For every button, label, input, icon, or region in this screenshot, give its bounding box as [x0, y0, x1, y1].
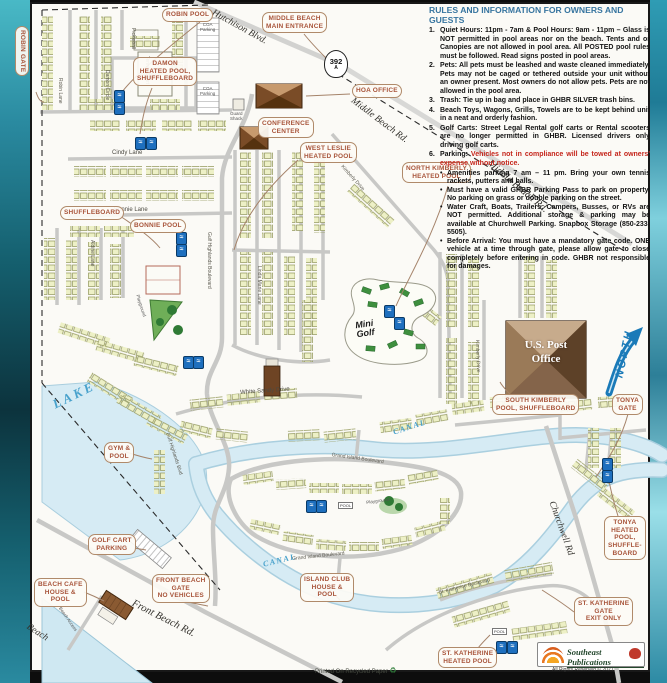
label-conference-center: CONFERENCE CENTER [258, 117, 314, 138]
pool-box-label: POOL [492, 628, 507, 635]
rule-item: 6. Parking: Vehicles not in compliance w… [429, 151, 650, 168]
highway-392-shield: 392 A [324, 50, 348, 78]
street-pickleball: Pickleball [130, 28, 136, 49]
pool-icon: ≈ [114, 102, 125, 115]
pool-icon: ≈ [384, 305, 395, 318]
pool-icon: ≈ [394, 317, 405, 330]
label-tonya-gate: TONYA GATE [612, 394, 643, 415]
rule-bullet: •Before Arrival: You must have a mandato… [440, 238, 650, 272]
street-cindy-lane: Cindy Lane [112, 150, 142, 156]
label-golf-cart-parking: GOLF CART PARKING [88, 534, 136, 555]
label-robin-gate: ROBIN GATE [15, 26, 29, 76]
rule-item: 5. Golf Carts: Street Legal Rental golf … [429, 125, 650, 151]
pool-icon: ≈ [146, 137, 157, 150]
map-page: RULES AND INFORMATION FOR OWNERS AND GUE… [0, 0, 667, 683]
label-shuffleboard: SHUFFLEBOARD [60, 206, 124, 220]
pool-icon: ≈ [193, 356, 204, 369]
sunset-icon [541, 647, 565, 663]
label-south-kimberly-pool: SOUTH KIMBERLY POOL, SHUFFLEBOARD [492, 394, 579, 415]
label-bonnie-pool: BONNIE POOL [130, 219, 186, 233]
label-hoa-office: HOA OFFICE [352, 84, 402, 98]
printed-on-recycled-paper: Printed On Recycled Paper ♻ [315, 666, 397, 675]
street-aldine-lane: Aldine Lane [89, 240, 95, 266]
mini-golf-label: Mini Golf [355, 319, 375, 340]
pool-icon: ≈ [602, 470, 613, 483]
street-gulf-highlands-blvd: Gulf Highlands Boulevard [206, 232, 212, 289]
rule-item: 2. Pets: All pets must be leashed and wa… [429, 62, 650, 96]
rule-bullet: •Must have a valid GHBR Parking Pass to … [440, 187, 650, 204]
guard-shack-label: Guard Shack [230, 111, 243, 121]
street-linda-marie-lane: Linda Marie Lane [256, 266, 262, 305]
coa-parking-label: COA Parking [200, 22, 215, 32]
label-west-leslie-pool: WEST LESLIE HEATED POOL [300, 142, 357, 163]
beach-photo-left-edge [0, 0, 30, 683]
label-tonya-pool: TONYA HEATED POOL, SHUFFLE- BOARD [604, 516, 646, 560]
pool-icon: ≈ [507, 641, 518, 654]
copyright-text: All Rights Reserved © 2021 [552, 667, 614, 673]
label-island-club: ISLAND CLUB HOUSE & POOL [300, 573, 354, 602]
street-kimberly-drive: Kimberly Drive [474, 340, 481, 373]
label-st-katherine-gate: ST. KATHERINE GATE EXIT ONLY [574, 597, 633, 626]
crab-icon [629, 648, 641, 659]
label-robin-pool: ROBIN POOL [162, 8, 213, 22]
coa-parking-label: COA Parking [200, 86, 215, 96]
rules-title: RULES AND INFORMATION FOR OWNERS AND GUE… [429, 5, 650, 25]
pool-box-label: POOL [338, 502, 353, 509]
pool-icon: ≈ [135, 137, 146, 150]
label-damon-pool: DAMON HEATED POOL, SHUFFLEBOARD [133, 57, 197, 86]
pool-icon: ≈ [496, 641, 507, 654]
rule-bullet: •Water Craft, Boats, Trailers, Campers, … [440, 204, 650, 238]
rule-item: 4. Beach Toys, Wagons, Grills, Towels ar… [429, 107, 650, 124]
label-st-katherine-pool: ST. KATHERINE HEATED POOL [438, 647, 497, 668]
label-middle-beach-entrance: MIDDLE BEACH MAIN ENTRANCE [262, 12, 327, 33]
label-gym-pool: GYM & POOL [104, 442, 134, 463]
post-office-label: U.S. Post Office [508, 339, 584, 367]
rule-item: 3. Trash: Tie up in bag and place in GHB… [429, 97, 650, 106]
street-damon-circle: Damon Circle [104, 70, 110, 100]
rule-bullet: •Amenities parking 7 am – 11 pm. Bring y… [440, 170, 650, 187]
publisher-logo: Southeast Publications [537, 642, 645, 667]
label-beach-cafe: BEACH CAFE HOUSE & POOL [34, 578, 87, 607]
street-robin-lane: Robin Lane [57, 78, 63, 104]
recycle-icon: ♻ [389, 666, 396, 675]
pool-icon: ≈ [176, 244, 187, 257]
rule-item: 1. Quiet Hours: 11pm - 7am & Pool Hours:… [429, 27, 650, 61]
rules-panel: RULES AND INFORMATION FOR OWNERS AND GUE… [429, 5, 650, 272]
beach-photo-right-edge [650, 0, 667, 683]
pool-icon: ≈ [316, 500, 327, 513]
label-front-beach-gate: FRONT BEACH GATE NO VEHICLES [152, 574, 210, 603]
